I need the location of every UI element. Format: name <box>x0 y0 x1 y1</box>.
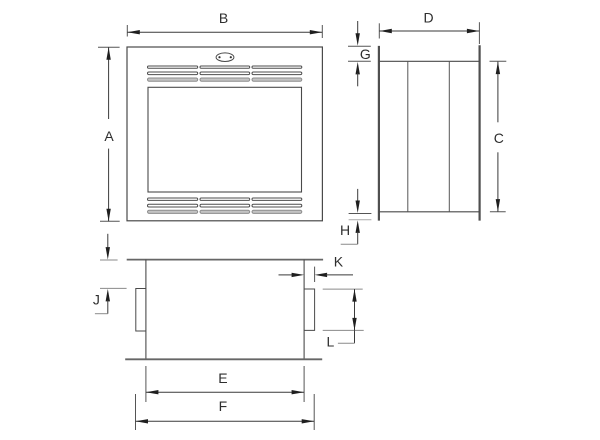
svg-text:H: H <box>340 222 350 238</box>
svg-text:E: E <box>218 370 227 386</box>
svg-text:K: K <box>334 254 344 270</box>
svg-text:D: D <box>424 10 434 26</box>
svg-text:J: J <box>93 292 100 308</box>
svg-text:B: B <box>219 10 228 26</box>
svg-text:L: L <box>327 334 335 350</box>
svg-text:G: G <box>360 46 371 62</box>
svg-text:A: A <box>104 128 114 144</box>
svg-text:F: F <box>219 398 228 414</box>
svg-text:C: C <box>494 130 504 146</box>
